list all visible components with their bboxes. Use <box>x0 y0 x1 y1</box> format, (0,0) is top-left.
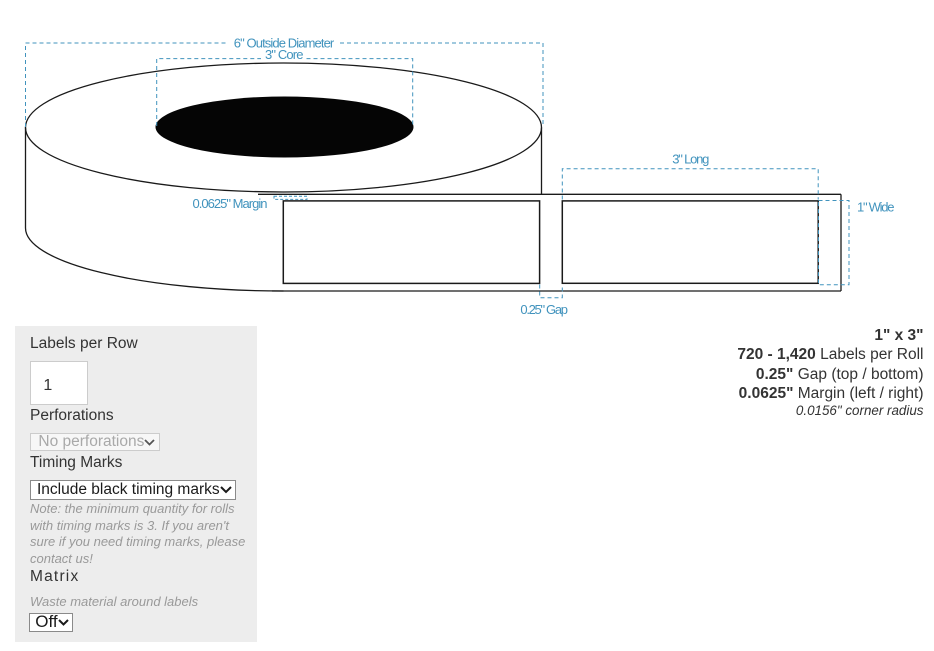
svg-text:3" Core: 3" Core <box>265 47 304 62</box>
svg-text:0.0625" Margin: 0.0625" Margin <box>193 196 268 211</box>
svg-text:3" Long: 3" Long <box>672 152 709 167</box>
svg-text:0.25" Gap: 0.25" Gap <box>520 302 568 317</box>
svg-text:1" Wide: 1" Wide <box>857 200 895 215</box>
